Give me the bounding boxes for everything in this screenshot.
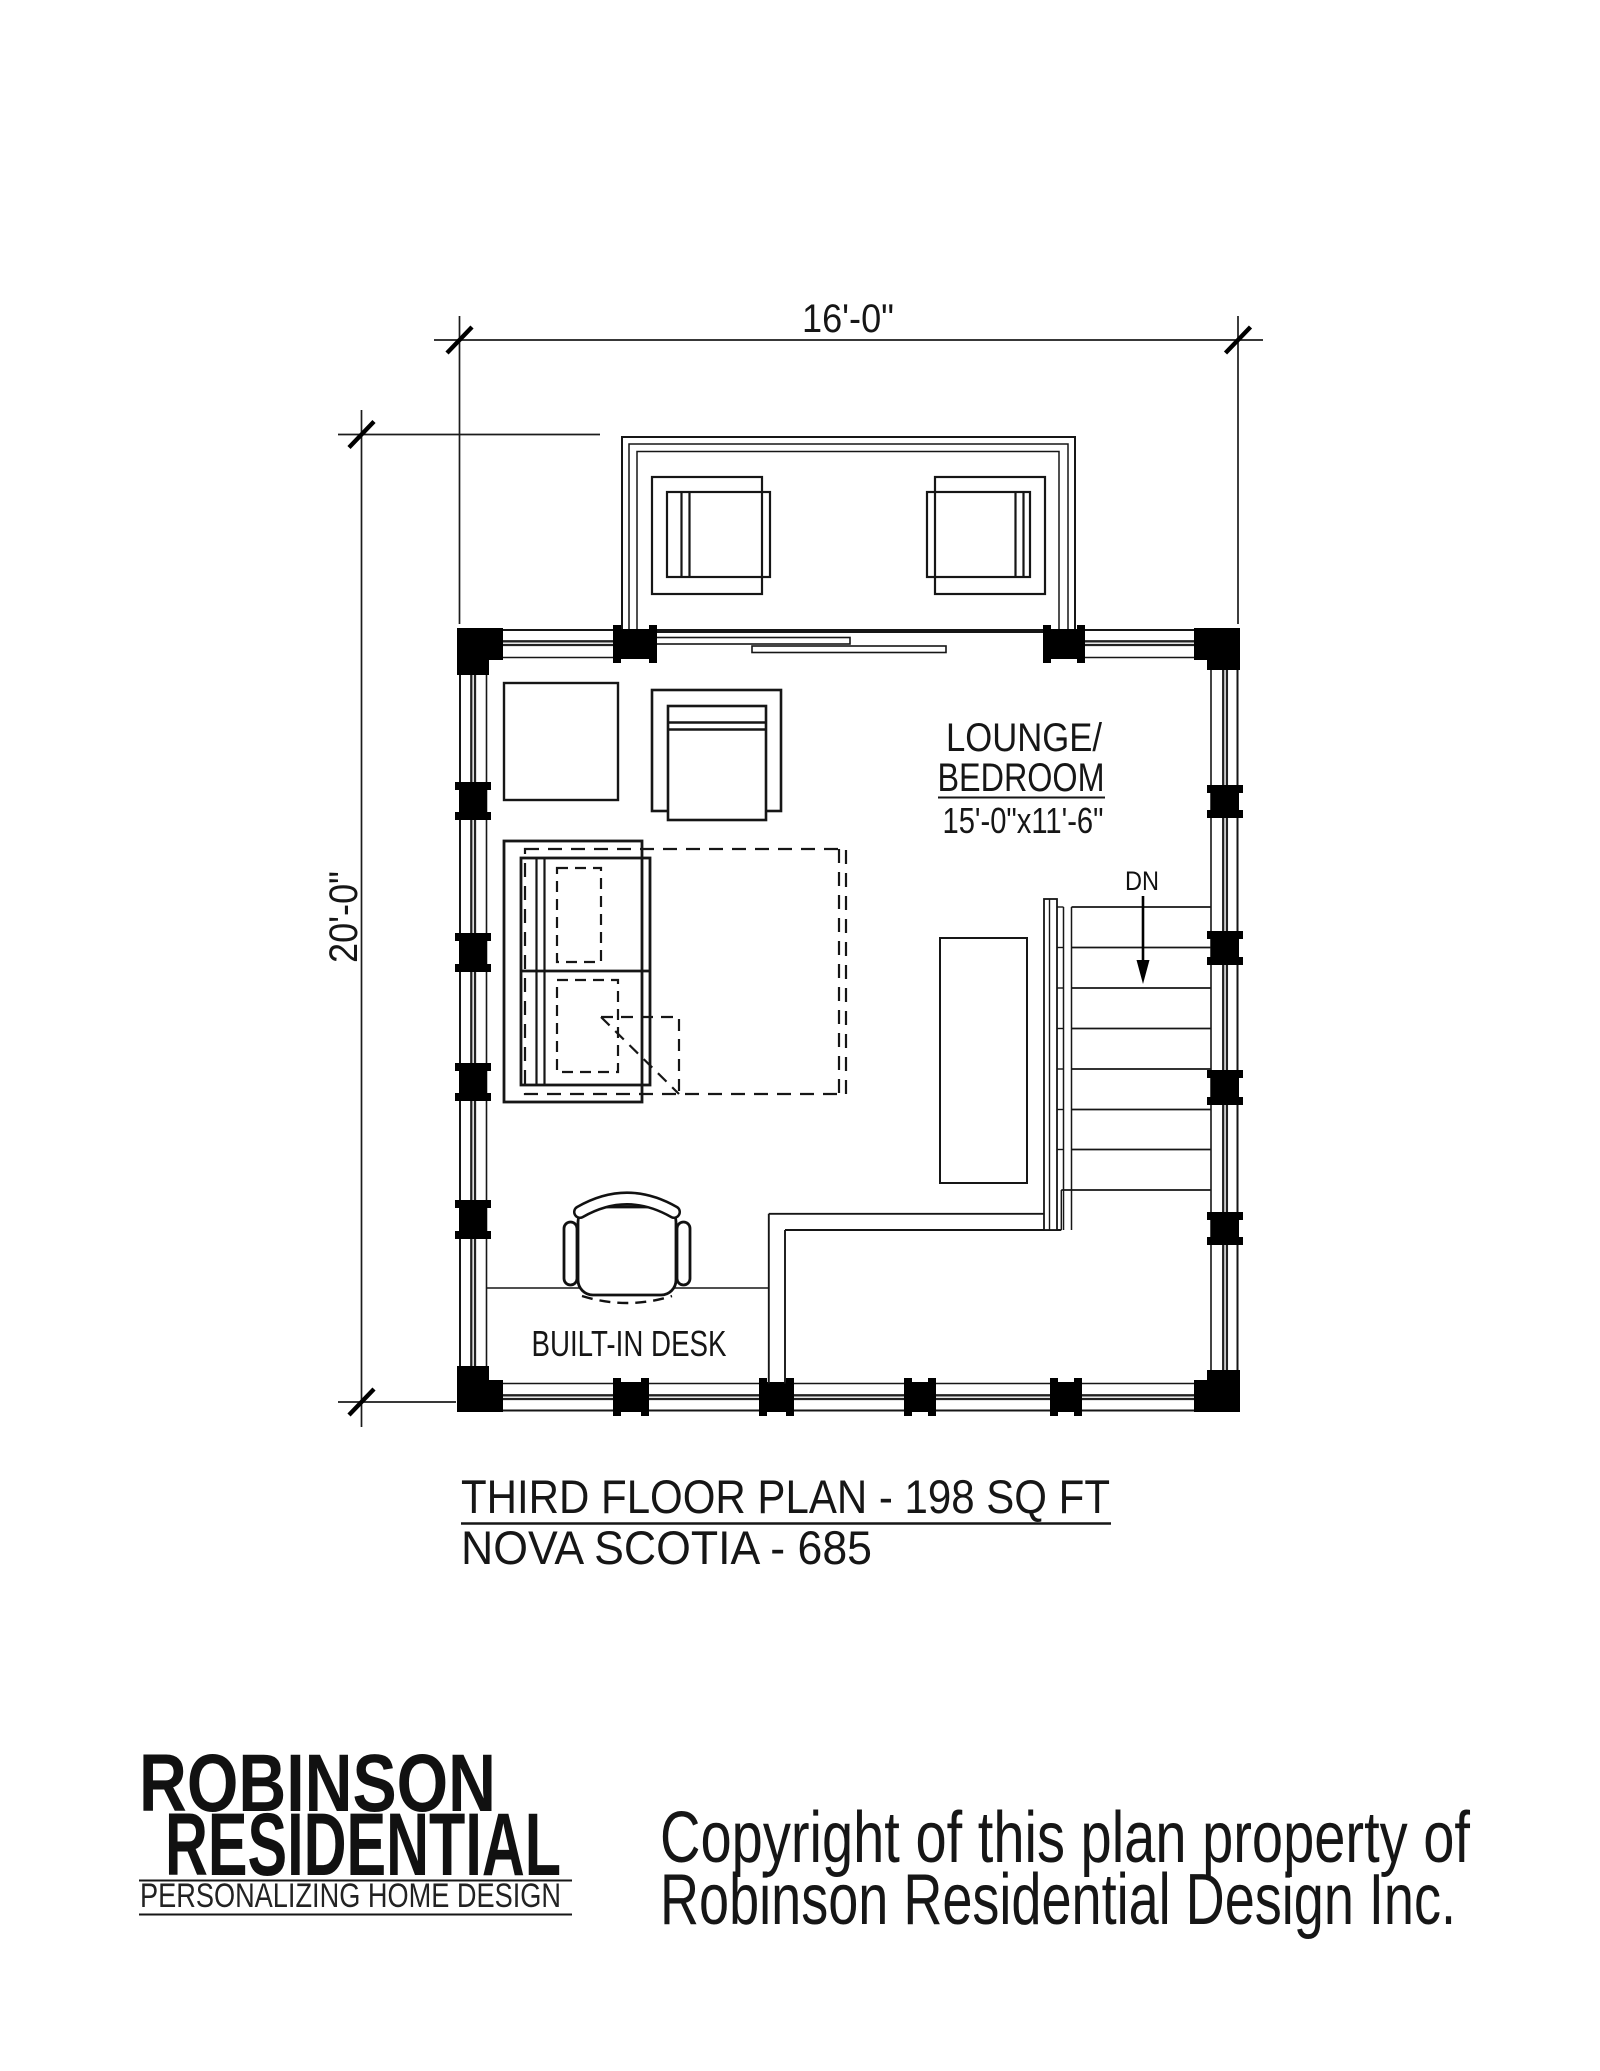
svg-text:20'-0": 20'-0": [322, 871, 366, 963]
svg-text:BEDROOM: BEDROOM: [938, 756, 1105, 800]
svg-text:LOUNGE/: LOUNGE/: [946, 716, 1103, 760]
svg-text:PERSONALIZING HOME DESIGN: PERSONALIZING HOME DESIGN: [140, 1877, 561, 1915]
svg-text:Robinson Residential Design In: Robinson Residential Design Inc.: [660, 1860, 1456, 1940]
svg-text:NOVA SCOTIA - 685: NOVA SCOTIA - 685: [461, 1521, 872, 1574]
svg-text:DN: DN: [1125, 866, 1159, 896]
svg-text:16'-0": 16'-0": [802, 297, 894, 341]
svg-text:THIRD FLOOR PLAN - 198 SQ FT: THIRD FLOOR PLAN - 198 SQ FT: [461, 1470, 1110, 1523]
svg-text:15'-0"x11'-6": 15'-0"x11'-6": [943, 800, 1104, 841]
svg-text:BUILT-IN DESK: BUILT-IN DESK: [532, 1323, 727, 1364]
